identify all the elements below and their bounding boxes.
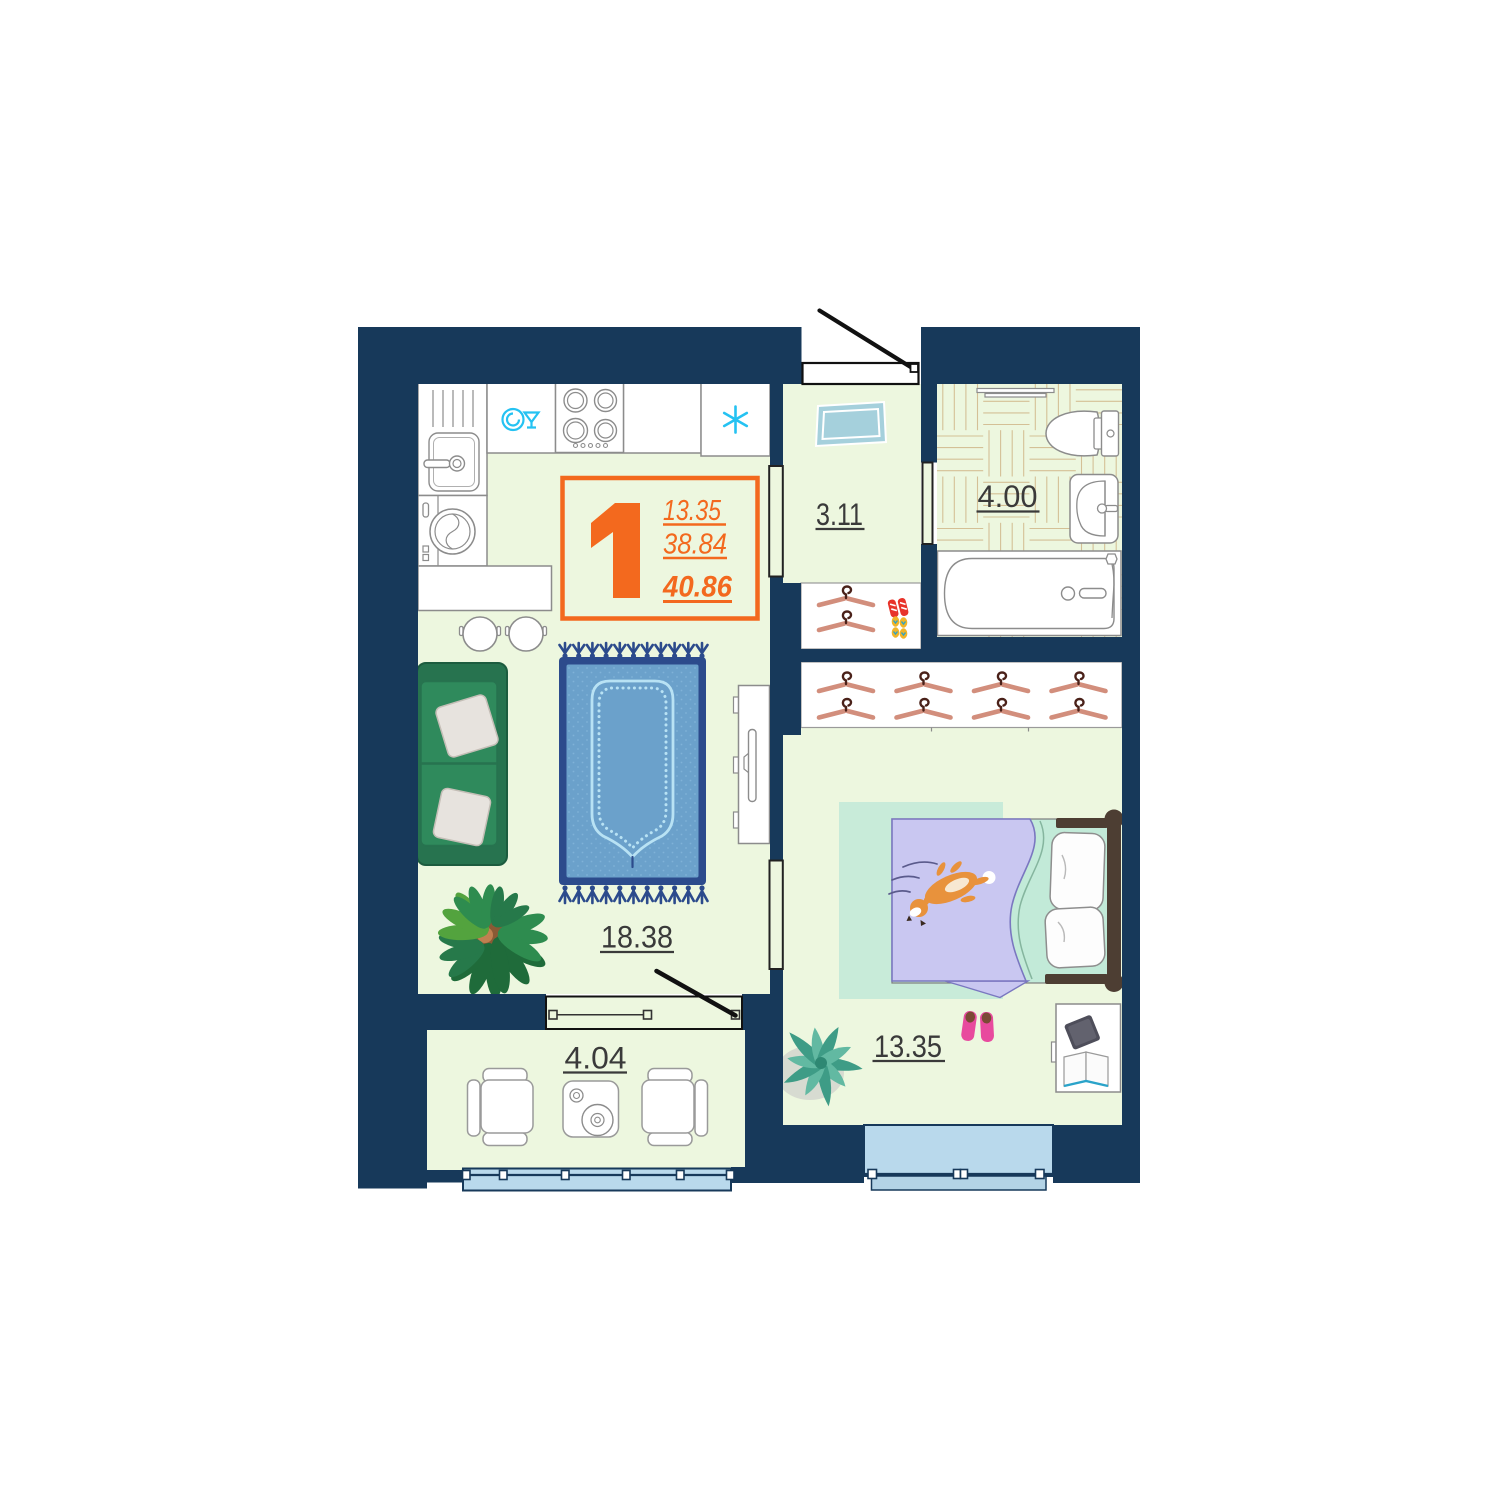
svg-text:3.11: 3.11 — [816, 496, 863, 532]
svg-text:38.84: 38.84 — [663, 529, 727, 561]
svg-text:13.35: 13.35 — [874, 1028, 942, 1064]
svg-text:40.86: 40.86 — [662, 571, 732, 604]
svg-text:4.04: 4.04 — [565, 1040, 627, 1076]
svg-text:13.35: 13.35 — [663, 495, 721, 527]
svg-text:18.38: 18.38 — [601, 919, 673, 955]
svg-text:4.00: 4.00 — [978, 478, 1038, 514]
